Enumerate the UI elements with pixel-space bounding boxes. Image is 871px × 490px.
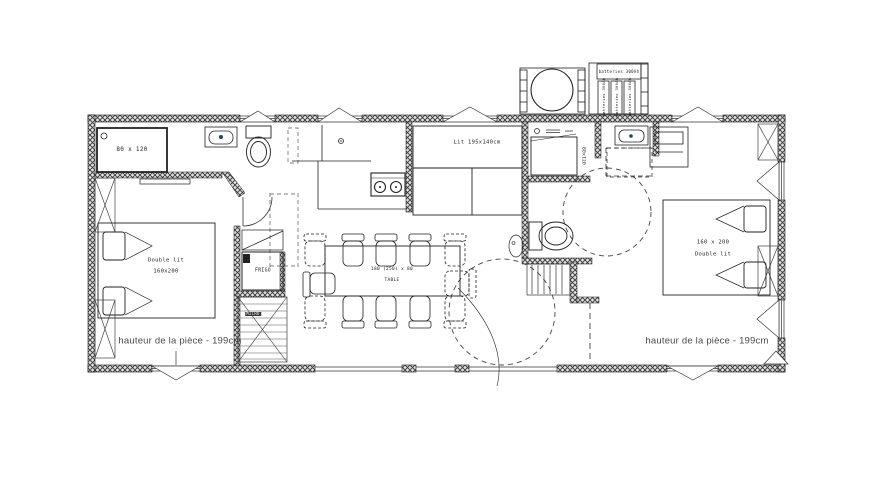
faucet-dot bbox=[219, 135, 223, 139]
bunk-bed-label: Lit 195x140cm bbox=[454, 140, 501, 146]
toilet-left bbox=[246, 126, 271, 167]
stove bbox=[371, 173, 405, 196]
faucet-dot bbox=[629, 134, 633, 138]
pillow bbox=[103, 287, 125, 315]
floorplan-drawing bbox=[0, 0, 871, 490]
shower-left-label: 80 x 120 bbox=[116, 147, 147, 153]
light-fixture bbox=[509, 235, 523, 257]
sliding-door-dashed bbox=[606, 148, 652, 176]
fridge-label: FRIGO bbox=[255, 270, 271, 275]
wall-braces bbox=[95, 124, 778, 358]
floorplan-canvas: 80 x 120 Lit 195x140cm Double lit 160x20… bbox=[0, 0, 871, 490]
bed-right bbox=[663, 200, 770, 295]
pillow bbox=[744, 206, 766, 232]
bed-right-size-label: 160 x 200 bbox=[697, 240, 730, 246]
water-tank-unit bbox=[520, 68, 585, 114]
doors bbox=[243, 148, 652, 226]
sink-left bbox=[205, 127, 237, 147]
bed-left-size-label: 160x200 bbox=[153, 269, 178, 275]
bedroom-right bbox=[650, 127, 770, 295]
pillow bbox=[103, 232, 125, 260]
height-note-left: hauteur de la pièce - 199cm bbox=[118, 336, 241, 346]
battery-3-label: batteries 300Ah bbox=[628, 78, 632, 117]
shelf bbox=[140, 179, 190, 184]
upper-shelf bbox=[242, 230, 283, 250]
faucet-icon bbox=[535, 129, 540, 134]
height-note-right: hauteur de la pièce - 199cm bbox=[645, 336, 768, 346]
micro-label: MICRO bbox=[245, 312, 261, 316]
bed-right-type-label: Double lit bbox=[695, 252, 731, 258]
dining bbox=[303, 234, 523, 386]
shower-tray-right bbox=[531, 137, 577, 175]
clearance-dashed bbox=[607, 148, 652, 177]
table-size-label: 180 (250) x 80 bbox=[371, 268, 413, 273]
bed-left-type-label: Double lit bbox=[148, 258, 184, 264]
shower-right-label: 80x120 bbox=[580, 147, 585, 165]
chairs-solid bbox=[303, 234, 431, 328]
shelving-unit bbox=[238, 297, 287, 362]
entry-steps bbox=[527, 264, 570, 295]
bathroom-right bbox=[529, 126, 652, 250]
sink-right bbox=[615, 126, 648, 145]
battery-1-label: batteries 300Ah bbox=[602, 78, 606, 117]
battery-bank-label: batteries 300Ah bbox=[599, 70, 640, 74]
outer-walls bbox=[88, 115, 785, 372]
battery-2-label: batteries 300Ah bbox=[615, 78, 619, 117]
table-label: TABLE bbox=[384, 279, 399, 284]
shower-drain bbox=[101, 133, 107, 139]
toilet-right bbox=[529, 222, 573, 250]
wardrobe-dashed bbox=[270, 128, 298, 267]
